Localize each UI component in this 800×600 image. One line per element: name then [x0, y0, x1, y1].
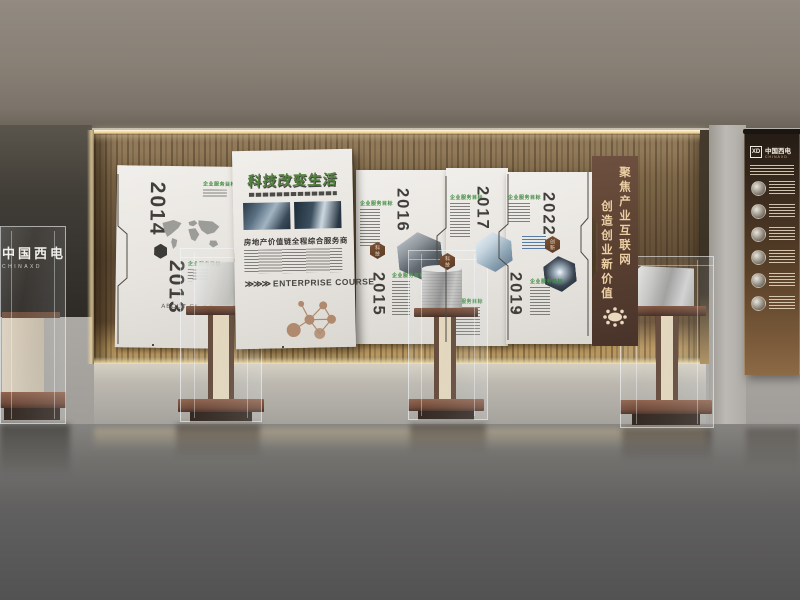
rollup-brand-en: CHINAXD: [765, 155, 791, 159]
floor-reflection-banner: [746, 428, 800, 468]
list-item: [751, 204, 797, 219]
text-block-light: [750, 165, 794, 175]
photo-circle: [751, 296, 766, 311]
photo-circle: [751, 250, 766, 265]
timeline-wall: 企业服务目标 2014 2013 企业服务目标 ABOUT: [94, 130, 706, 364]
rollup-feature-list: [751, 181, 797, 319]
rollup-brand-cn: 中国西电: [765, 145, 791, 155]
exhibition-hall-scene: 中国西电 CHINAXD 企业服务目标 2014: [0, 0, 800, 600]
floor-reflection-left-case: [0, 424, 70, 476]
rollup-logo-row: XD 中国西电 CHINAXD: [750, 145, 791, 159]
ceiling: [0, 0, 800, 132]
list-item: [751, 273, 797, 288]
list-item: [751, 227, 797, 242]
list-item: [751, 296, 797, 311]
text-block-light: [769, 181, 795, 195]
text-block-light: [769, 296, 795, 310]
photo-circle: [751, 227, 766, 242]
text-block-light: [769, 204, 795, 218]
rollup-top-rail: [743, 129, 800, 134]
rollup-banner: XD 中国西电 CHINAXD: [744, 133, 800, 375]
cove-light-edge-left: [87, 130, 94, 364]
text-block-light: [769, 250, 795, 264]
vertical-banner: 聚焦产业互联网 创造创业新价值: [592, 156, 638, 346]
photo-circle: [751, 204, 766, 219]
text-block-light: [769, 273, 795, 287]
floor-reflection-pedestal: [410, 424, 486, 454]
banner-line-2: 创造创业新价值: [598, 200, 614, 302]
left-display-case: [0, 226, 70, 426]
photo-circle: [751, 273, 766, 288]
rollup-brand-lockup: 中国西电 CHINAXD: [765, 145, 791, 159]
orbit-emblem-icon: [602, 306, 628, 328]
xd-logo: XD: [750, 146, 762, 158]
list-item: [751, 250, 797, 265]
banner-line-1: 聚焦产业互联网: [616, 166, 632, 268]
photo-circle: [751, 181, 766, 196]
floor-reflection-pedestal: [622, 428, 712, 462]
floor: [0, 424, 800, 600]
glass-vitrine: [0, 226, 66, 424]
text-block-light: [769, 227, 795, 241]
floor-reflection-pedestal: [176, 424, 260, 458]
list-item: [751, 181, 797, 196]
